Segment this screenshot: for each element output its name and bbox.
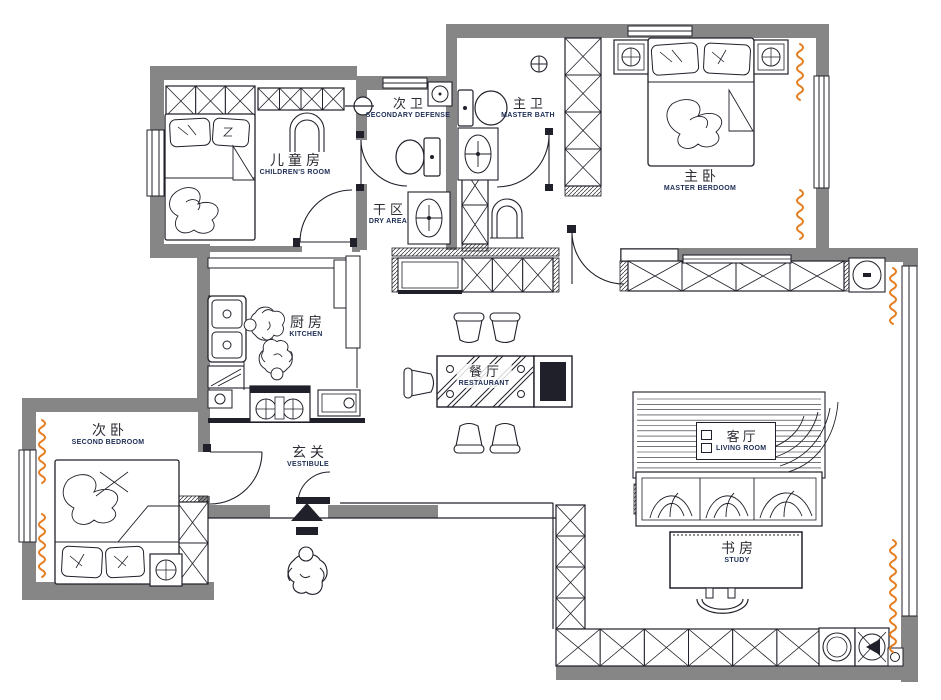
bottom-cabinet-row xyxy=(556,629,821,666)
wardrobe-children-right xyxy=(258,88,344,110)
legend-square xyxy=(701,430,712,440)
wardrobe-master-bath xyxy=(565,38,601,186)
sideboard-hall xyxy=(462,258,553,292)
entry-column-cabinet xyxy=(556,505,585,629)
living-room-label-box: 客厅LIVING ROOM xyxy=(696,422,776,460)
floor-plan: 儿童房CHILDREN'S ROOM 次卫SECONDARY DEFENSE 主… xyxy=(0,0,941,700)
study-chair xyxy=(697,599,748,613)
room-label-dining: 餐厅RESTAURANT xyxy=(457,364,512,388)
sideboard-plain xyxy=(398,258,462,294)
legend-square xyxy=(701,443,712,453)
kitchen-person-figure-2 xyxy=(259,340,292,380)
master-bed xyxy=(648,38,754,166)
entry-arrow xyxy=(291,503,323,521)
entry-marker xyxy=(291,503,323,535)
tv-cabinet xyxy=(628,261,844,291)
kitchen-person-figure xyxy=(244,307,284,340)
room-label-second-bedroom: 次卧SECOND BEDROOM xyxy=(72,422,145,447)
entry-person-figure xyxy=(288,547,327,594)
room-label-secondary-bath: 次卫SECONDARY DEFENSE xyxy=(366,96,450,120)
floor-plan-drawing xyxy=(0,0,941,700)
room-label-kitchen: 厨房KITCHEN xyxy=(286,314,326,339)
entry-door-leaf xyxy=(296,497,330,504)
room-label-children: 儿童房CHILDREN'S ROOM xyxy=(260,152,331,177)
room-label-study: 书房STUDY xyxy=(717,540,757,565)
wardrobe-children-left xyxy=(166,86,255,116)
room-label-vestibule: 玄关VESTIBULE xyxy=(287,444,329,469)
living-room xyxy=(633,255,885,526)
room-label-living: 客厅LIVING ROOM xyxy=(716,429,766,453)
kitchen-fixtures xyxy=(208,256,360,422)
room-label-master-bedroom: 主卧MASTER BERDOOM xyxy=(664,168,736,193)
dry-area-basin xyxy=(408,192,450,244)
room-label-dry-area: 干区DRY AREA xyxy=(369,202,407,226)
sofa xyxy=(636,472,822,526)
room-label-master-bath: 主卫MASTER BATH xyxy=(501,96,555,120)
